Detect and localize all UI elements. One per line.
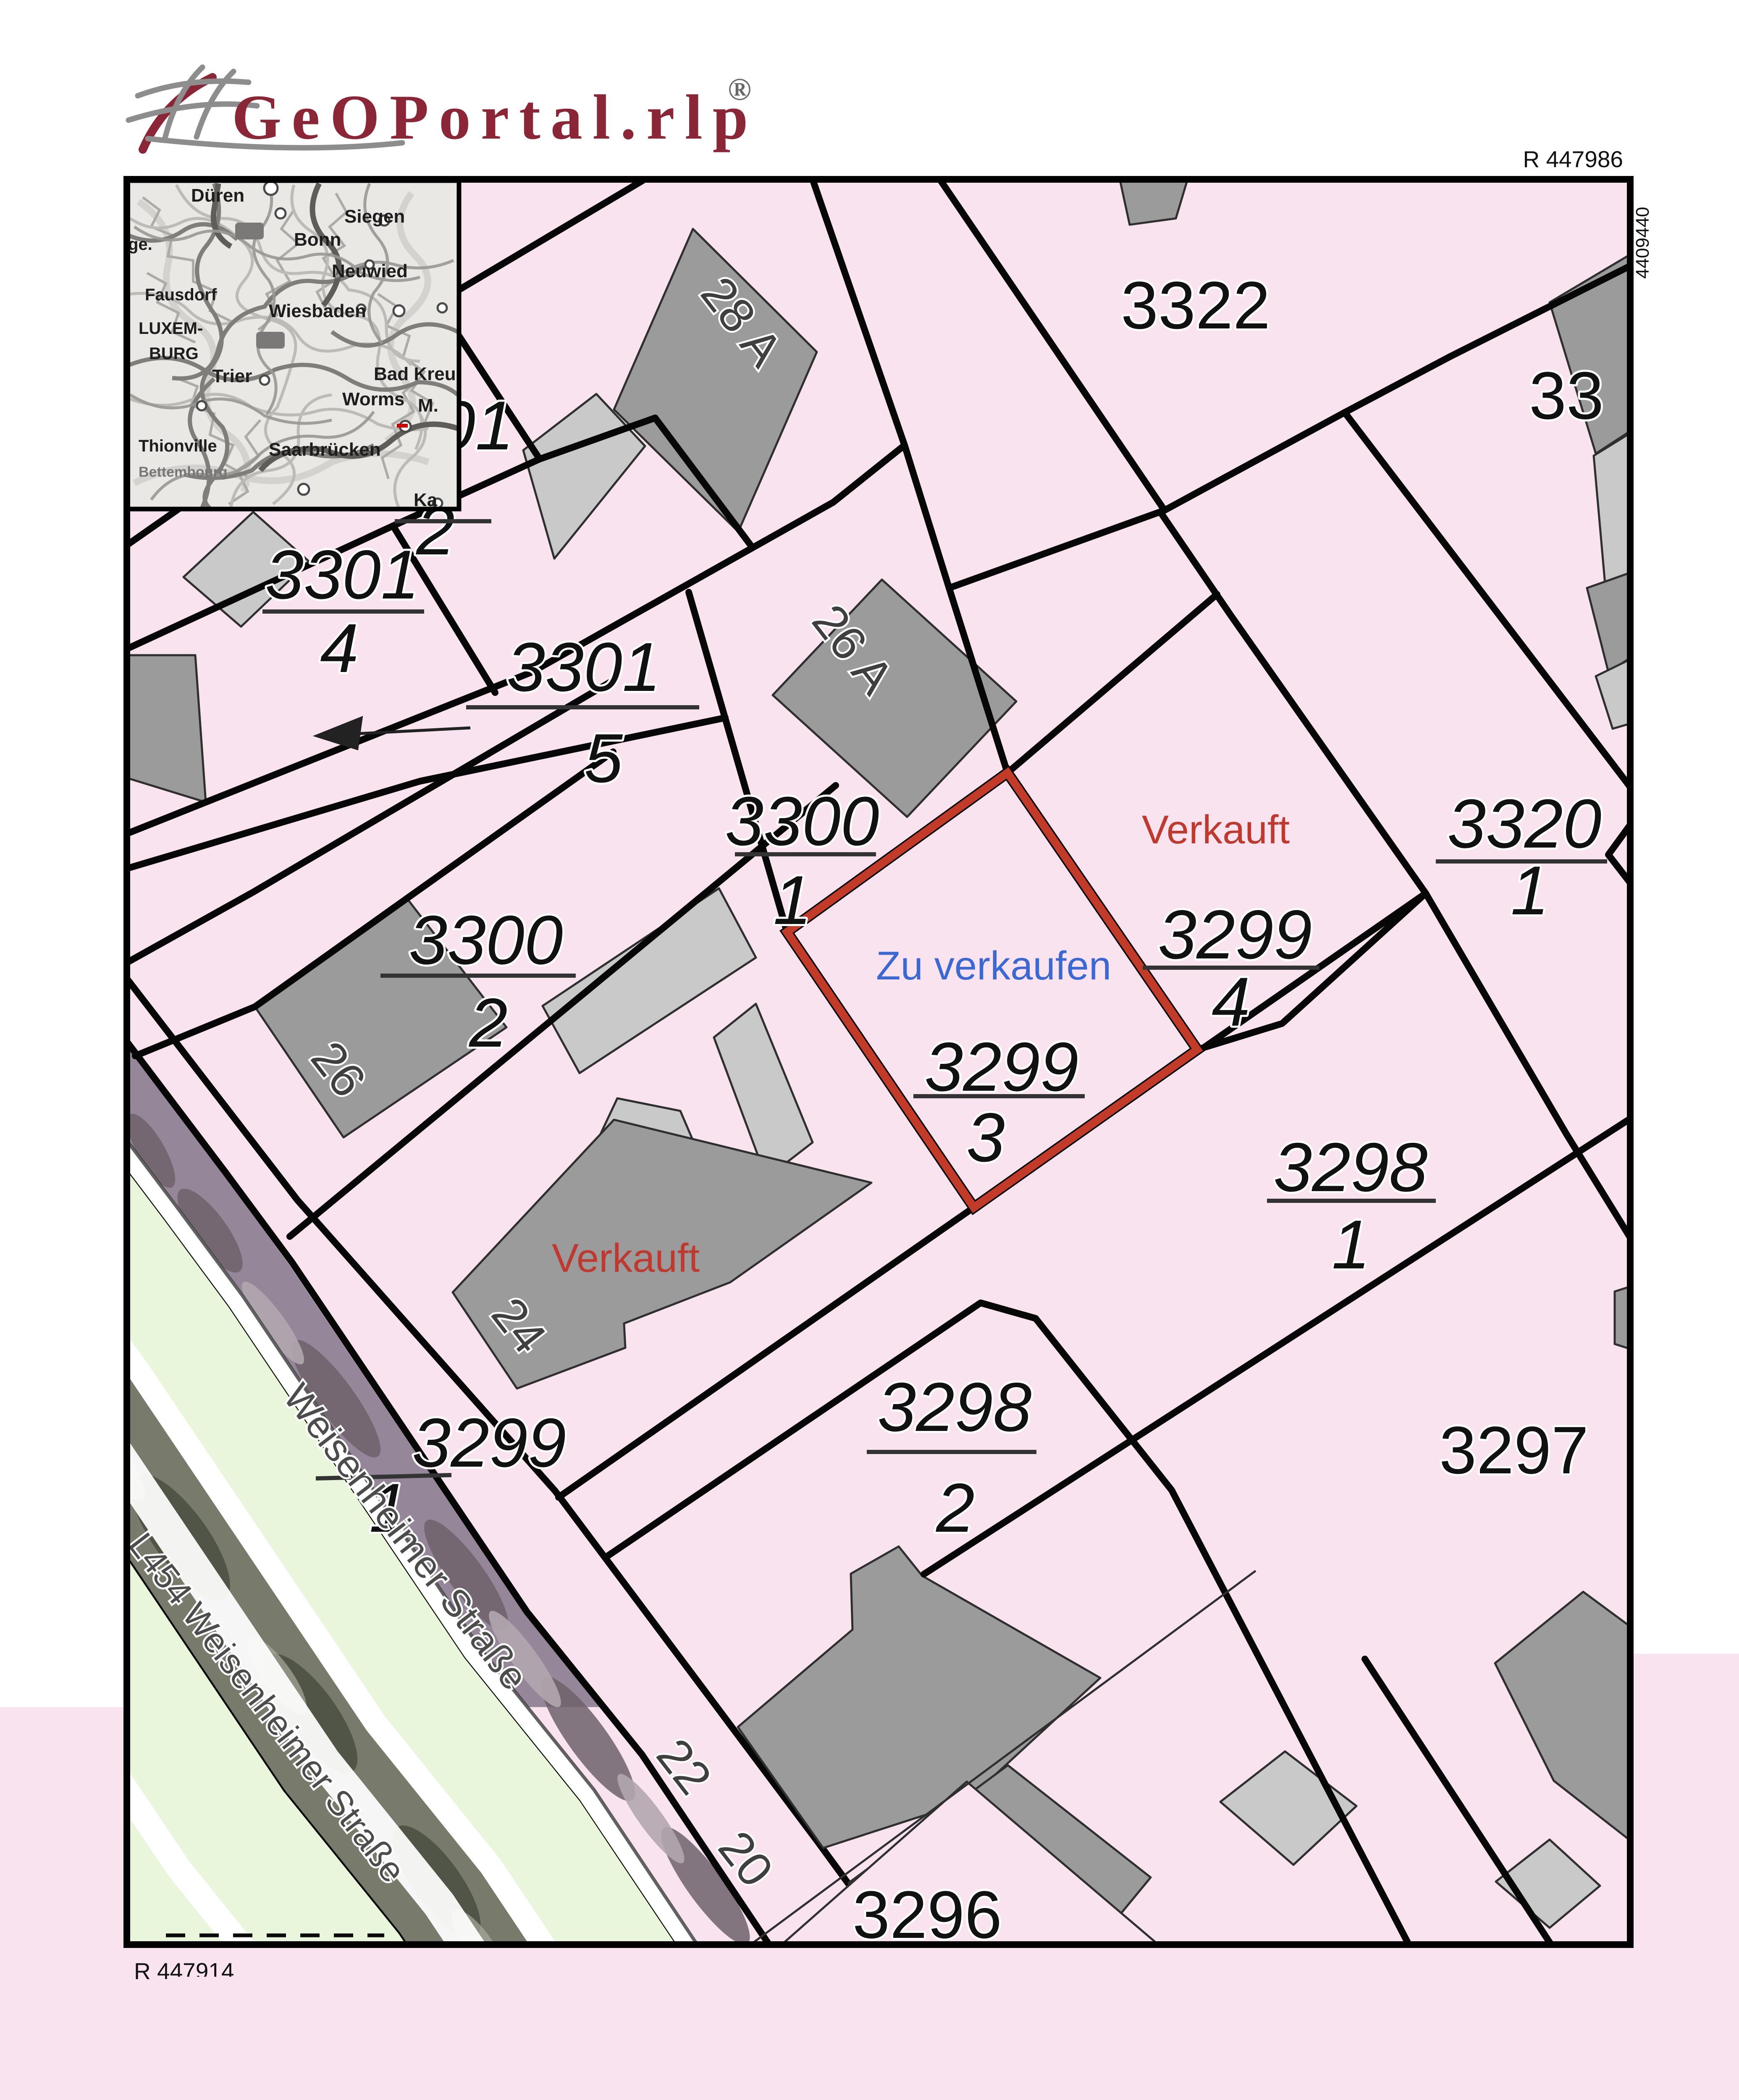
svg-text:LUXEM-: LUXEM- [139,319,203,338]
svg-text:GeOPortal.rlp: GeOPortal.rlp [232,82,758,152]
svg-text:2: 2 [936,1469,975,1546]
svg-text:1: 1 [773,861,812,939]
svg-text:Saarbrücken: Saarbrücken [269,439,381,460]
svg-text:®: ® [728,72,751,107]
svg-text:3299: 3299 [1158,896,1312,973]
svg-text:Siegen: Siegen [344,206,405,227]
svg-text:M.: M. [418,395,438,416]
svg-text:2: 2 [469,984,508,1061]
svg-text:O: O [1588,2083,1614,2100]
svg-text:3301: 3301 [265,536,419,613]
svg-text:1 : 400: 1 : 400 [883,2010,980,2046]
svg-text:3299: 3299 [924,1028,1078,1105]
svg-text:3320: 3320 [1447,785,1601,862]
svg-text:3: 3 [966,1099,1005,1176]
svg-text:3299: 3299 [412,1404,566,1481]
svg-text:Worms: Worms [342,389,404,409]
svg-text:Verkauft: Verkauft [552,1236,700,1281]
svg-text:Maßstab:: Maßstab: [684,2005,861,2050]
svg-text:R 447914: R 447914 [134,1958,234,1984]
svg-text:R 447986: R 447986 [1523,146,1623,172]
svg-text:1: 1 [1332,1206,1370,1283]
svg-text:3298: 3298 [877,1368,1031,1446]
svg-text:Trier: Trier [212,366,252,386]
svg-text:Düren: Düren [191,185,244,206]
svg-text:4409440: 4409440 [1632,207,1653,278]
svg-text:3301: 3301 [506,628,661,706]
svg-text:Bonn: Bonn [294,229,341,250]
svg-text:3297: 3297 [1439,1412,1589,1488]
svg-text:Bettembourg: Bettembourg [139,464,228,480]
svg-text:4: 4 [320,609,359,687]
svg-text:3300: 3300 [409,901,563,979]
svg-text:W: W [1431,2082,1465,2100]
svg-text:Fausdorf: Fausdorf [145,286,217,304]
svg-text:Zu verkaufen: Zu verkaufen [876,943,1111,988]
svg-text:BURG: BURG [149,344,199,363]
svg-text:3298: 3298 [1273,1129,1427,1206]
svg-text:3322: 3322 [1121,268,1270,343]
svg-text:3296: 3296 [852,1877,1002,1952]
svg-text:Verkauft: Verkauft [1142,807,1290,852]
svg-text:5: 5 [584,719,623,797]
svg-text:33: 33 [1529,358,1604,433]
svg-text:4: 4 [1212,963,1250,1040]
svg-text:Neuwied: Neuwied [332,261,408,281]
svg-text:Wiesbaden: Wiesbaden [269,301,366,321]
svg-text:ge.: ge. [128,235,152,254]
svg-text:4406080: 4406080 [83,1829,104,1900]
svg-text:Thionville: Thionville [139,437,217,455]
svg-text:3300: 3300 [725,782,879,860]
svg-text:Bad Kreu: Bad Kreu [374,364,456,384]
svg-text:N: N [1514,2005,1540,2045]
